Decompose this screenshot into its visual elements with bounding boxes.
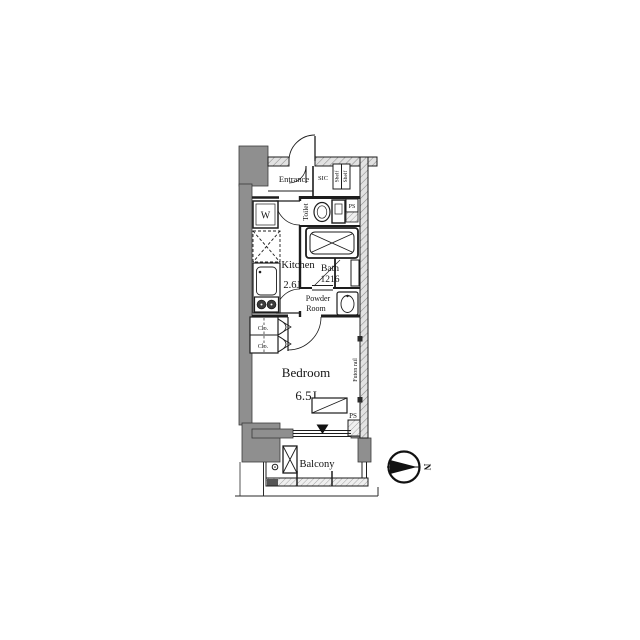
- powder-room: Powder Room: [276, 289, 358, 315]
- closet-top-label: Clo.: [258, 326, 269, 332]
- floor-plan-page: Entrance SIC Shelf Shelf PS Toilet Bath …: [0, 0, 640, 640]
- bath-counter: [351, 260, 359, 286]
- kitchen-label: Kitchen: [281, 260, 315, 271]
- toilet-label: Toilet: [301, 202, 310, 220]
- bedroom-door-arc: [288, 317, 321, 350]
- balcony-rail: [266, 478, 368, 486]
- wall-balcony-right: [358, 438, 371, 462]
- entrance-door-arc: [289, 135, 315, 161]
- bath-label: Bath: [321, 264, 339, 274]
- toilet-bowl: [314, 203, 330, 222]
- compass: N: [387, 452, 432, 483]
- wall-left-strip: [239, 184, 252, 425]
- futon-rail-label: Futon rail: [353, 358, 359, 382]
- balcony: Balcony: [266, 446, 368, 486]
- wall-top-left-block: [239, 146, 268, 186]
- ps-lower-label: PS: [349, 412, 357, 420]
- toilet-room: Toilet: [276, 200, 345, 225]
- sic-shelf-bottom-label: Shelf: [342, 171, 349, 183]
- compass-north-label: N: [422, 464, 432, 471]
- bedroom-label: Bedroom: [282, 365, 330, 380]
- entrance-label: Entrance: [279, 174, 309, 184]
- powder-room-label-2: Room: [306, 304, 326, 313]
- ps-upper-label: PS: [349, 204, 356, 210]
- powder-sink-faucet: [346, 295, 348, 297]
- toilet-tank: [332, 200, 345, 223]
- futon-rail-end-bottom: [358, 397, 363, 403]
- closet-doors: [278, 319, 291, 352]
- futon-rail-end-top: [358, 336, 363, 342]
- bath-size-label: 1216: [321, 275, 340, 285]
- balcony-label: Balcony: [300, 459, 336, 470]
- sic-label: SIC: [318, 175, 328, 182]
- bedroom: Clo. Clo. Bedroom 6.5J Futon rail PS: [250, 317, 363, 436]
- sic-shelf-top-label: Shelf: [334, 171, 341, 183]
- toilet-door-arc: [276, 201, 300, 225]
- stove-burner-left-dot: [261, 304, 263, 306]
- wall-right: [360, 157, 368, 438]
- kitchen-size-label: 2.6J: [283, 280, 300, 291]
- bath-room: Bath 1216: [306, 228, 359, 286]
- kitchen-faucet: [259, 271, 262, 274]
- fridge-space: [253, 231, 280, 262]
- balcony-rail-left-post: [267, 479, 278, 486]
- wall-bedroom-bottom-left: [252, 429, 293, 438]
- balcony-drain-dot: [274, 466, 276, 468]
- entry-direction-marker: [317, 425, 329, 435]
- closet-bottom-label: Clo.: [258, 344, 269, 350]
- washer-label: W: [261, 211, 271, 222]
- floor-plan: Entrance SIC Shelf Shelf PS Toilet Bath …: [0, 0, 640, 640]
- wall-top-a: [268, 157, 289, 166]
- stove-burner-right-dot: [271, 304, 273, 306]
- ps-upper-hatch: [346, 212, 358, 222]
- powder-room-label-1: Powder: [306, 294, 331, 303]
